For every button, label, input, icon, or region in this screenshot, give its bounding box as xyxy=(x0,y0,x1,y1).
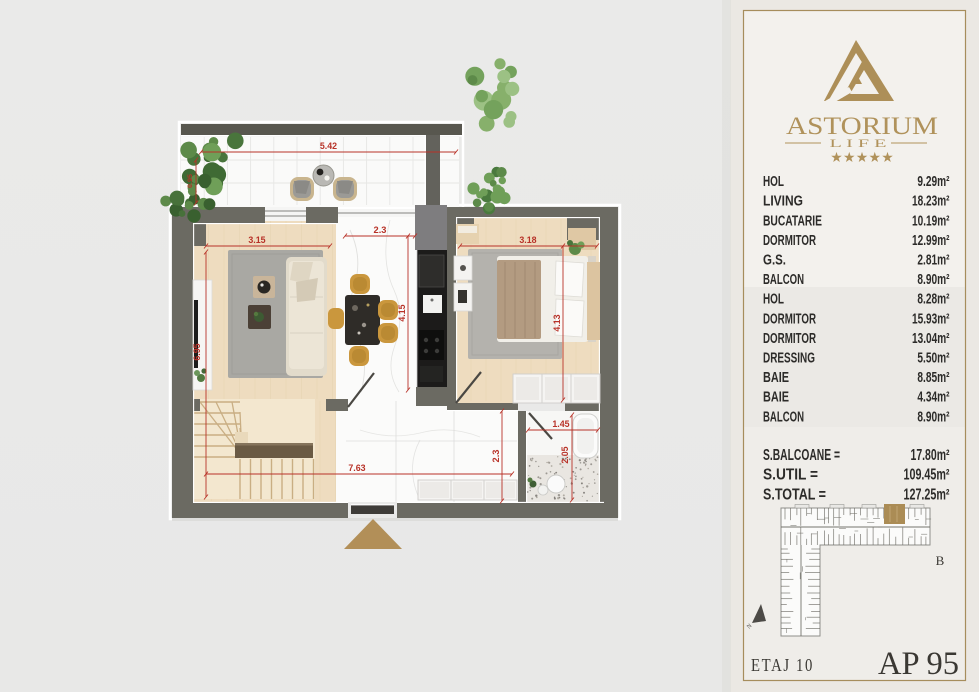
svg-text:B: B xyxy=(936,553,945,568)
svg-text:2.81m²: 2.81m² xyxy=(917,253,949,269)
svg-text:AP 95: AP 95 xyxy=(878,646,959,682)
svg-text:ASTORIUM: ASTORIUM xyxy=(786,113,938,140)
svg-text:10.19m²: 10.19m² xyxy=(912,213,950,229)
svg-text:8.85m²: 8.85m² xyxy=(917,370,949,386)
svg-text:S.UTIL =: S.UTIL = xyxy=(763,467,818,484)
svg-text:DORMITOR: DORMITOR xyxy=(763,331,816,347)
svg-text:BALCON: BALCON xyxy=(763,272,804,288)
svg-text:6.95: 6.95 xyxy=(192,343,202,360)
svg-text:2.3: 2.3 xyxy=(374,225,387,235)
svg-text:7.63: 7.63 xyxy=(348,463,365,473)
svg-text:S.BALCOANE =: S.BALCOANE = xyxy=(763,447,840,464)
svg-text:HOL: HOL xyxy=(763,292,784,308)
svg-text:4.34m²: 4.34m² xyxy=(917,390,949,406)
svg-text:LIVING: LIVING xyxy=(763,194,803,210)
svg-text:DRESSING: DRESSING xyxy=(763,351,815,367)
svg-text:2.05: 2.05 xyxy=(560,446,570,463)
svg-text:G.S.: G.S. xyxy=(763,253,786,269)
svg-text:BALCON: BALCON xyxy=(763,409,804,425)
svg-text:BUCATARIE: BUCATARIE xyxy=(763,213,822,229)
svg-text:18.23m²: 18.23m² xyxy=(912,194,950,210)
svg-text:0.95: 0.95 xyxy=(187,174,194,188)
svg-text:8.90m²: 8.90m² xyxy=(917,409,949,425)
svg-text:L I F E: L I F E xyxy=(830,138,887,150)
svg-text:8.90m²: 8.90m² xyxy=(917,272,949,288)
svg-text:12.99m²: 12.99m² xyxy=(912,233,950,249)
svg-text:HOL: HOL xyxy=(763,174,784,190)
svg-text:DORMITOR: DORMITOR xyxy=(763,233,816,249)
svg-text:BAIE: BAIE xyxy=(763,370,789,386)
svg-text:3.15: 3.15 xyxy=(248,235,265,245)
svg-text:4.13: 4.13 xyxy=(552,314,562,331)
svg-text:5.50m²: 5.50m² xyxy=(917,351,949,367)
svg-text:S.TOTAL =: S.TOTAL = xyxy=(763,486,826,503)
svg-text:BAIE: BAIE xyxy=(763,390,789,406)
svg-text:8.28m²: 8.28m² xyxy=(917,292,949,308)
svg-text:4.15: 4.15 xyxy=(397,304,407,321)
svg-text:DORMITOR: DORMITOR xyxy=(763,311,816,327)
svg-text:1.45: 1.45 xyxy=(552,419,569,429)
svg-text:17.80m²: 17.80m² xyxy=(911,447,950,464)
svg-text:127.25m²: 127.25m² xyxy=(904,486,950,503)
svg-text:5.42: 5.42 xyxy=(320,141,337,151)
svg-text:15.93m²: 15.93m² xyxy=(912,311,950,327)
svg-text:2.3: 2.3 xyxy=(491,450,501,463)
svg-text:ETAJ 10: ETAJ 10 xyxy=(751,655,814,675)
svg-text:3.18: 3.18 xyxy=(519,235,536,245)
svg-text:13.04m²: 13.04m² xyxy=(912,331,950,347)
svg-text:9.29m²: 9.29m² xyxy=(917,174,949,190)
svg-text:109.45m²: 109.45m² xyxy=(904,467,950,484)
